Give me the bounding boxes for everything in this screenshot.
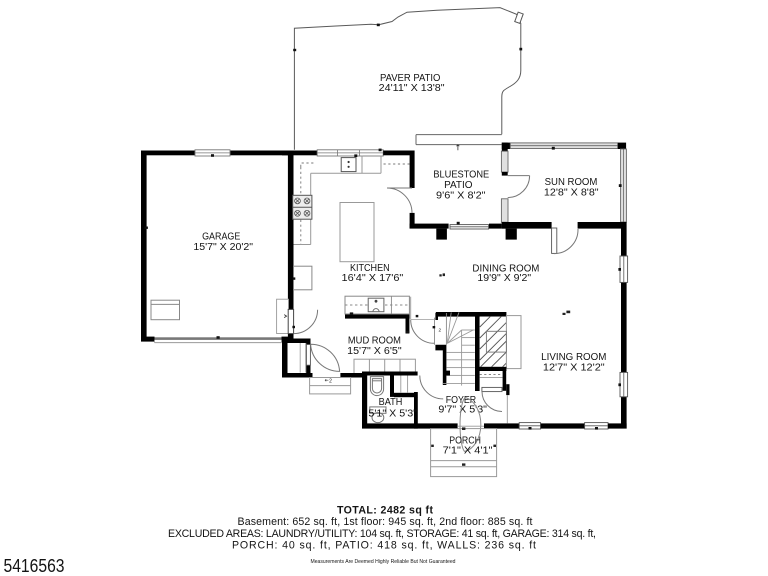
svg-text:SUN ROOM: SUN ROOM bbox=[545, 177, 598, 188]
svg-text:12'7" X 12'2": 12'7" X 12'2" bbox=[543, 363, 605, 374]
svg-text:Basement: 652 sq. ft, 1st floo: Basement: 652 sq. ft, 1st floor: 945 sq.… bbox=[238, 516, 533, 528]
svg-text:9'6" X 8'2": 9'6" X 8'2" bbox=[436, 191, 486, 202]
svg-text:MUD ROOM: MUD ROOM bbox=[348, 335, 401, 346]
svg-text:9'7" X 5'3": 9'7" X 5'3" bbox=[438, 405, 487, 416]
svg-text:24'11" X 13'8": 24'11" X 13'8" bbox=[379, 83, 446, 94]
svg-text:PATIO: PATIO bbox=[444, 180, 473, 191]
svg-text:PORCH: 40 sq. ft, PATIO: 418 s: PORCH: 40 sq. ft, PATIO: 418 sq. ft, WAL… bbox=[232, 540, 536, 552]
svg-text:EXCLUDED AREAS: LAUNDRY/UTILIT: EXCLUDED AREAS: LAUNDRY/UTILITY: 104 sq.… bbox=[168, 528, 596, 540]
svg-text:5416563: 5416563 bbox=[4, 556, 65, 576]
svg-text:LIVING ROOM: LIVING ROOM bbox=[541, 352, 606, 363]
svg-text:19'9" X 9'2": 19'9" X 9'2" bbox=[477, 273, 531, 284]
svg-text:BLUESTONE: BLUESTONE bbox=[433, 169, 489, 180]
svg-text:2: 2 bbox=[329, 378, 332, 384]
svg-text:2: 2 bbox=[439, 328, 442, 333]
svg-text:15'7" X 20'2": 15'7" X 20'2" bbox=[193, 242, 253, 253]
svg-text:5'1" X 5'3": 5'1" X 5'3" bbox=[368, 409, 417, 420]
svg-text:BATH: BATH bbox=[379, 397, 403, 408]
svg-text:15'7" X 6'5": 15'7" X 6'5" bbox=[347, 346, 402, 357]
svg-text:12'8" X 8'8": 12'8" X 8'8" bbox=[544, 188, 599, 199]
svg-text:7'1" X 4'1": 7'1" X 4'1" bbox=[443, 445, 494, 456]
svg-text:TOTAL: 2482 sq ft: TOTAL: 2482 sq ft bbox=[337, 505, 433, 517]
svg-text:16'4" X 17'6": 16'4" X 17'6" bbox=[342, 273, 404, 284]
svg-text:Measurements Are Deemed Highly: Measurements Are Deemed Highly Reliable … bbox=[311, 559, 456, 565]
